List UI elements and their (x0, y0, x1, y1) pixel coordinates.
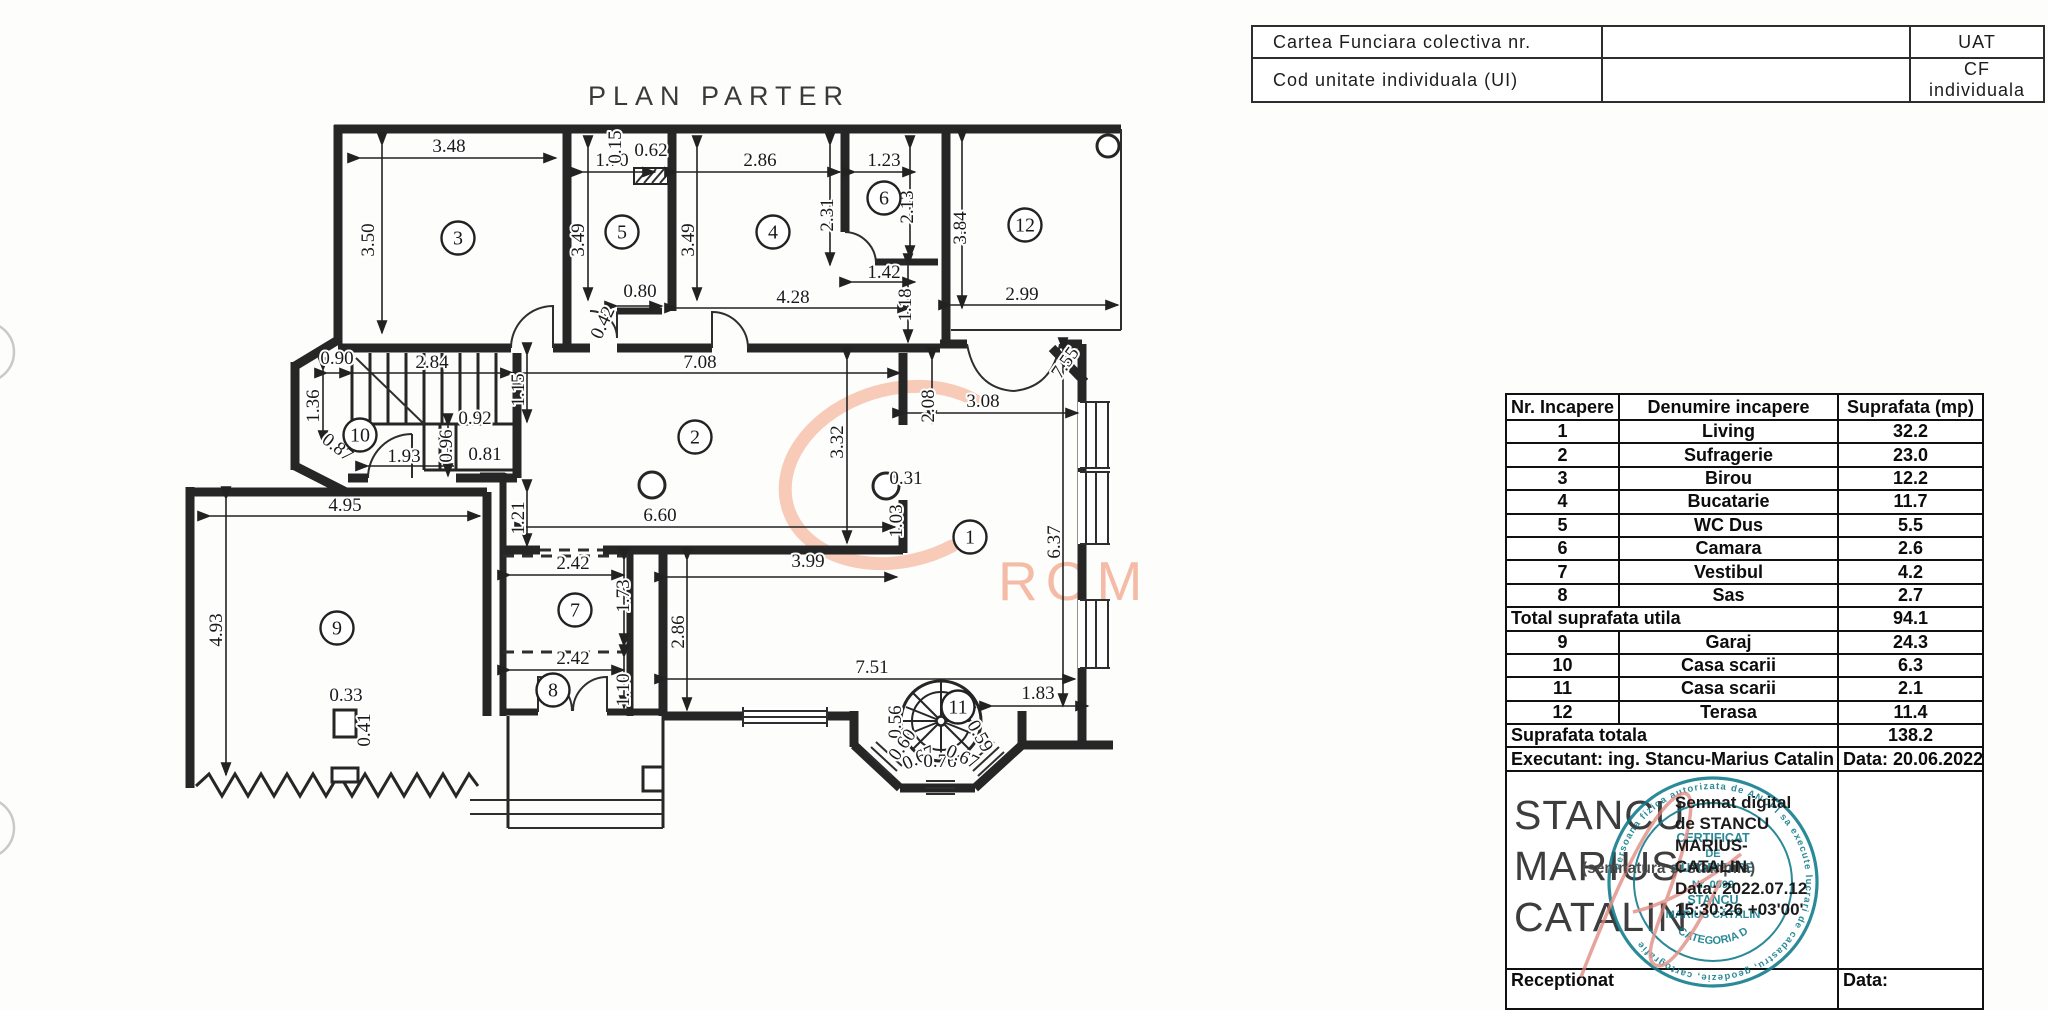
dimension-label: 1.93 (387, 446, 420, 467)
table-cell: 6.3 (1838, 654, 1983, 677)
header-row: Nr. IncapereDenumire incapereSuprafata (… (1506, 394, 1983, 420)
dimension-label: 4.95 (328, 495, 361, 516)
dimension-label: 2.84 (415, 352, 449, 373)
table-cell: 4 (1506, 490, 1619, 513)
dimension-label: 0.15 (605, 130, 626, 163)
watermark-text: ROMANIA (998, 550, 1148, 612)
table-cell: Vestibul (1619, 560, 1838, 583)
column-header: Denumire incapere (1619, 394, 1838, 420)
table-cell: 5 (1506, 514, 1619, 537)
dimension-label: 1.42 (867, 262, 900, 283)
dimension-label: 7.08 (683, 352, 716, 373)
column-header: Nr. Incapere (1506, 394, 1619, 420)
dimension-label: 1.83 (1021, 683, 1054, 704)
room-number: 11 (948, 697, 967, 719)
dimension-label: 1.15 (508, 373, 529, 406)
dimension-label: 3.49 (678, 223, 699, 256)
column (334, 710, 356, 737)
table-cell: 2.1 (1838, 677, 1983, 700)
room-number: 12 (1015, 215, 1035, 237)
table-row: 1Living32.2 (1506, 420, 1983, 443)
dimension-label: 1.21 (508, 501, 529, 534)
room-number: 2 (690, 427, 700, 449)
dimension-label: 6.37 (1044, 525, 1065, 558)
table-cell: 4.2 (1838, 560, 1983, 583)
header-table-cell: Cod unitate individuala (UI) (1252, 58, 1602, 102)
table-cell: Terasa (1619, 701, 1838, 724)
dimension-label: 7.51 (855, 657, 888, 678)
table-cell: 12.2 (1838, 467, 1983, 490)
dimension-label: 3.48 (432, 136, 465, 157)
header-table-cell: UAT (1910, 26, 2044, 58)
table-row: 5WC Dus5.5 (1506, 514, 1983, 537)
table-cell: 2.6 (1838, 537, 1983, 560)
table-cell: Sufragerie (1619, 443, 1838, 466)
table-cell: Birou (1619, 467, 1838, 490)
stamp-bottom-text: CATEGORIA D (1676, 925, 1751, 947)
table-cell: 94.1 (1838, 607, 1983, 630)
table-cell: 8 (1506, 584, 1619, 607)
table-cell: 11.7 (1838, 490, 1983, 513)
table-cell: 9 (1506, 631, 1619, 654)
table-cell: Garaj (1619, 631, 1838, 654)
dimension-label: 0.92 (458, 408, 491, 429)
table-cell: 138.2 (1838, 724, 1983, 747)
table-row: 10Casa scarii6.3 (1506, 654, 1983, 677)
room-number: 10 (350, 425, 370, 447)
table-row: 11Casa scarii2.1 (1506, 677, 1983, 700)
plan-title: PLAN PARTER (588, 81, 850, 111)
column (639, 472, 665, 498)
header-table-cell: Cartea Funciara colectiva nr. (1252, 26, 1602, 58)
total-utila-row: Total suprafata utila94.1 (1506, 607, 1983, 630)
table-row: 4Bucatarie11.7 (1506, 490, 1983, 513)
table-cell: Bucatarie (1619, 490, 1838, 513)
door-arc (511, 306, 553, 348)
dimension-label: 2.42 (556, 553, 589, 574)
room-number: 4 (768, 222, 778, 244)
dimension-label: 3.50 (358, 223, 379, 256)
dimension-label: 0.33 (329, 685, 362, 706)
dimension-label: 0.90 (320, 348, 353, 369)
hole-punch-icon (0, 322, 14, 382)
table-row: 9Garaj24.3 (1506, 631, 1983, 654)
svg-text:CATEGORIA D: CATEGORIA D (1676, 925, 1751, 947)
dimension-label: 6.60 (643, 505, 676, 526)
dimension-label: 1.18 (895, 288, 916, 321)
table-cell: 1 (1506, 420, 1619, 443)
cadastral-header-table: Cartea Funciara colectiva nr.UATCod unit… (1251, 25, 2045, 103)
dimension-label: 2.31 (817, 198, 838, 231)
dimension-label: 0.31 (889, 468, 922, 489)
table-cell: 11 (1506, 677, 1619, 700)
table-cell: 6 (1506, 537, 1619, 560)
table-cell: 5.5 (1838, 514, 1983, 537)
table-row: 7Vestibul4.2 (1506, 560, 1983, 583)
window (743, 707, 827, 727)
table-row: 8Sas2.7 (1506, 584, 1983, 607)
room-number: 7 (570, 600, 580, 622)
dimension-label: 3.99 (791, 551, 824, 572)
dimension-label: 2.86 (743, 150, 776, 171)
table-cell: Suprafata totala (1506, 724, 1838, 747)
dimension-label: 2.86 (668, 615, 689, 648)
dimension-label: 4.28 (776, 287, 809, 308)
table-cell: Casa scarii (1619, 654, 1838, 677)
column-header: Suprafata (mp) (1838, 394, 1983, 420)
table-cell: 23.0 (1838, 443, 1983, 466)
table-row: 3Birou12.2 (1506, 467, 1983, 490)
table-cell: 11.4 (1838, 701, 1983, 724)
table-cell: Data: 20.06.2022 (1838, 747, 1983, 770)
header-table-cell (1602, 58, 1910, 102)
dimension-label: 4.93 (206, 613, 227, 646)
dimension-label: 1.03 (886, 504, 907, 537)
dimension-label: 1.73 (613, 579, 634, 612)
table-cell: 32.2 (1838, 420, 1983, 443)
table-cell: 24.3 (1838, 631, 1983, 654)
header-table-row: Cartea Funciara colectiva nr.UAT (1252, 26, 2044, 58)
terrace-post (1097, 135, 1119, 157)
dimension-label: 2.99 (1005, 284, 1038, 305)
dimension-label: 3.84 (950, 211, 971, 245)
room-number: 3 (453, 228, 463, 250)
total-row: Suprafata totala138.2 (1506, 724, 1983, 747)
dimension-label: 0.42 (586, 303, 619, 342)
scanned-cadastral-document: { "header_table": { "rows": [ {"label": … (0, 0, 2048, 982)
table-cell: Casa scarii (1619, 677, 1838, 700)
entry-steps (470, 716, 663, 828)
dimension-label: 1.23 (867, 150, 900, 171)
dimension-label: 0.96 (436, 429, 457, 462)
dimension-label: 3.32 (827, 425, 848, 458)
window (1078, 402, 1112, 668)
header-table-row: Cod unitate individuala (UI)CF individua… (1252, 58, 2044, 102)
dimension-label: 3.08 (966, 391, 999, 412)
table-cell: Living (1619, 420, 1838, 443)
table-cell: 2.7 (1838, 584, 1983, 607)
dimension-label: 2.42 (556, 648, 589, 669)
rooms-area-table: Nr. IncapereDenumire incapereSuprafata (… (1505, 393, 1984, 1010)
hatched-pier (634, 168, 668, 184)
dimension-label: 0.80 (623, 281, 656, 302)
table-cell: 3 (1506, 467, 1619, 490)
digital-signature-note: Semnat digital de STANCU MARIUS- CATALIN… (1675, 792, 1807, 921)
table-row: 12Terasa11.4 (1506, 701, 1983, 724)
header-table-cell: CF individuala (1910, 58, 2044, 102)
table-cell: WC Dus (1619, 514, 1838, 537)
dimension-label: 0.41 (354, 713, 375, 746)
signature-row: STANCU MARIUS CATALIN Persoana fizica au… (1506, 771, 1983, 969)
floor-plan-drawing: ROMANIA PLAN PARTER (0, 0, 1148, 982)
table-cell: 7 (1506, 560, 1619, 583)
receptionat-date-label: Data: (1838, 969, 1983, 1009)
dimension-label: 2.08 (918, 389, 939, 422)
signature-empty-cell (1838, 771, 1983, 969)
table-cell: Sas (1619, 584, 1838, 607)
dimension-label: 1.10 (613, 673, 634, 706)
table-cell: 2 (1506, 443, 1619, 466)
header-table-cell (1602, 26, 1910, 58)
table-cell: 10 (1506, 654, 1619, 677)
table-row: 2Sufragerie23.0 (1506, 443, 1983, 466)
hole-punch-icon (0, 798, 14, 858)
table-cell: Total suprafata utila (1506, 607, 1838, 630)
room-number: 1 (965, 527, 975, 549)
dimension-label: 0.81 (468, 444, 501, 465)
dimension-label: 1.36 (303, 389, 324, 422)
room-number: 5 (617, 222, 627, 244)
dimension-label: 0.62 (634, 140, 667, 161)
dimension-label: 3.49 (568, 223, 589, 256)
room-number: 6 (879, 188, 889, 210)
table-cell: 12 (1506, 701, 1619, 724)
table-cell: Camara (1619, 537, 1838, 560)
table-row: 6Camara2.6 (1506, 537, 1983, 560)
room-number: 9 (332, 618, 342, 640)
room-number: 8 (548, 680, 558, 702)
